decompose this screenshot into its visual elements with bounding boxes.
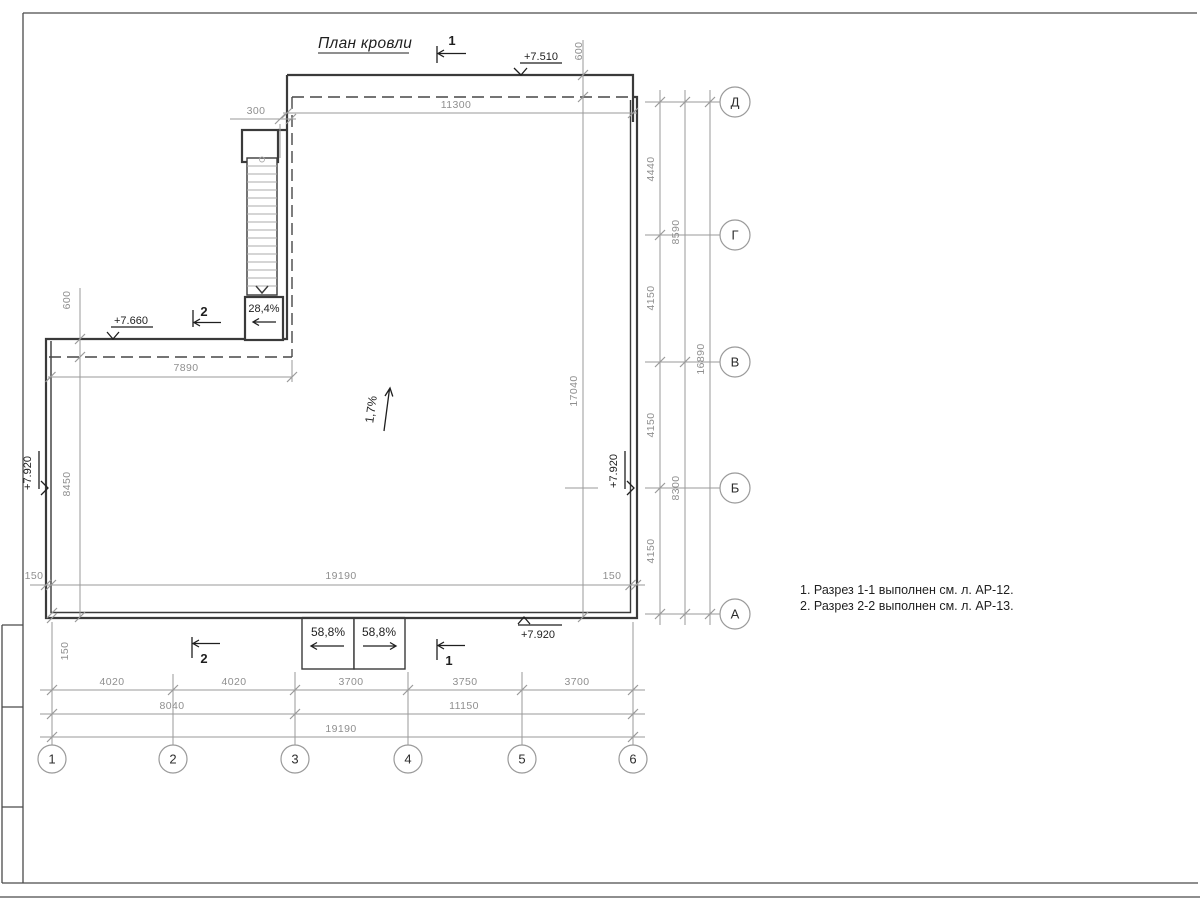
axis-6: 6 <box>629 752 636 767</box>
building-outline <box>46 75 637 618</box>
axis-D: Д <box>731 95 740 110</box>
dim-150-bottom: 150 <box>59 642 71 661</box>
elevation-bottom: +7.920 <box>518 617 562 641</box>
elevation-wing: +7.660 <box>107 315 153 339</box>
ladder-platform <box>242 130 278 162</box>
roof-slope-label: 1,7% <box>362 395 380 424</box>
section-mark-2-top: 2 <box>193 304 221 327</box>
ramp-left-slope: 58,8% <box>311 625 345 639</box>
inner-wall-line <box>51 100 631 613</box>
dim-8590: 8590 <box>670 220 682 245</box>
dim-600-left: 600 <box>61 291 73 310</box>
axis-V: В <box>731 355 740 370</box>
drawing-sheet: 28,4% 58,8% 58,8% 1,7% 11300 300 600 170… <box>0 0 1200 900</box>
elevation-top-value: +7.510 <box>524 51 558 63</box>
roof-ladder: 28,4% <box>242 130 286 340</box>
dim-8040: 8040 <box>160 700 185 712</box>
axis-bubbles-right: Д Г В Б А <box>720 87 750 629</box>
note-line-2: 2. Разрез 2-2 выполнен см. л. АР-13. <box>800 599 1014 613</box>
elevation-wing-value: +7.660 <box>114 315 148 327</box>
dim-4150-a: 4150 <box>645 286 657 311</box>
dim-19190-inner: 19190 <box>325 570 356 582</box>
dim-4020-a: 4020 <box>100 676 125 688</box>
dim-16890: 16890 <box>695 343 707 374</box>
dim-8300: 8300 <box>670 476 682 501</box>
section-2-label: 2 <box>200 304 207 319</box>
axis-1: 1 <box>48 752 55 767</box>
dim-3750: 3750 <box>453 676 478 688</box>
dim-150-left: 150 <box>25 570 44 582</box>
elevation-right-value: +7.920 <box>608 454 620 488</box>
note-line-1: 1. Разрез 1-1 выполнен см. л. АР-12. <box>800 583 1014 597</box>
dim-19190-total: 19190 <box>325 723 356 735</box>
notes: 1. Разрез 1-1 выполнен см. л. АР-12. 2. … <box>800 583 1014 613</box>
dim-17040: 17040 <box>568 375 580 406</box>
dim-4020-b: 4020 <box>222 676 247 688</box>
dim-11300: 11300 <box>441 99 471 111</box>
drawing-title: План кровли <box>318 35 412 53</box>
elevation-marks: +7.510 +7.660 +7.920 +7.920 +7.920 <box>22 51 634 641</box>
dim-7890: 7890 <box>174 362 199 374</box>
elevation-left-value: +7.920 <box>22 456 34 490</box>
dim-8450: 8450 <box>61 472 73 497</box>
axis-2: 2 <box>169 752 176 767</box>
ramp-boxes: 58,8% 58,8% <box>302 618 405 669</box>
section-mark-1-top: 1 <box>437 33 466 63</box>
ladder-shaft <box>247 158 277 295</box>
section-mark-1-bottom: 1 <box>437 639 465 668</box>
axis-5: 5 <box>518 752 525 767</box>
dim-11150: 11150 <box>449 700 479 712</box>
dim-4150-b: 4150 <box>645 413 657 438</box>
axis-A: А <box>731 607 740 622</box>
ramp-right-slope: 58,8% <box>362 625 396 639</box>
section-mark-2-bottom: 2 <box>192 637 220 666</box>
dim-3700-a: 3700 <box>339 676 364 688</box>
axis-bubbles-bottom: 1 2 3 4 5 6 <box>38 745 647 773</box>
dim-300: 300 <box>247 105 266 117</box>
axis-B: Б <box>731 481 740 496</box>
axis-4: 4 <box>404 752 411 767</box>
dim-4150-c: 4150 <box>645 539 657 564</box>
elevation-left: +7.920 <box>22 451 48 495</box>
section-2-label-bottom: 2 <box>200 651 207 666</box>
stair-slope-label: 28,4% <box>248 303 279 315</box>
axis-G: Г <box>731 228 738 243</box>
dim-150-right: 150 <box>603 570 622 582</box>
roof-slope: 1,7% <box>362 388 393 431</box>
page-title: План кровли <box>318 35 412 52</box>
dim-4440: 4440 <box>645 157 657 182</box>
section-1-label-bottom: 1 <box>445 653 452 668</box>
dim-600-top: 600 <box>573 42 585 61</box>
section-1-label: 1 <box>448 33 455 48</box>
dim-3700-b: 3700 <box>565 676 590 688</box>
roof-plan-drawing: 28,4% 58,8% 58,8% 1,7% 11300 300 600 170… <box>0 0 1200 900</box>
roof-slope-arrow <box>384 388 393 431</box>
elevation-top: +7.510 <box>514 51 562 75</box>
elevation-bottom-value: +7.920 <box>521 629 555 641</box>
axis-3: 3 <box>291 752 298 767</box>
